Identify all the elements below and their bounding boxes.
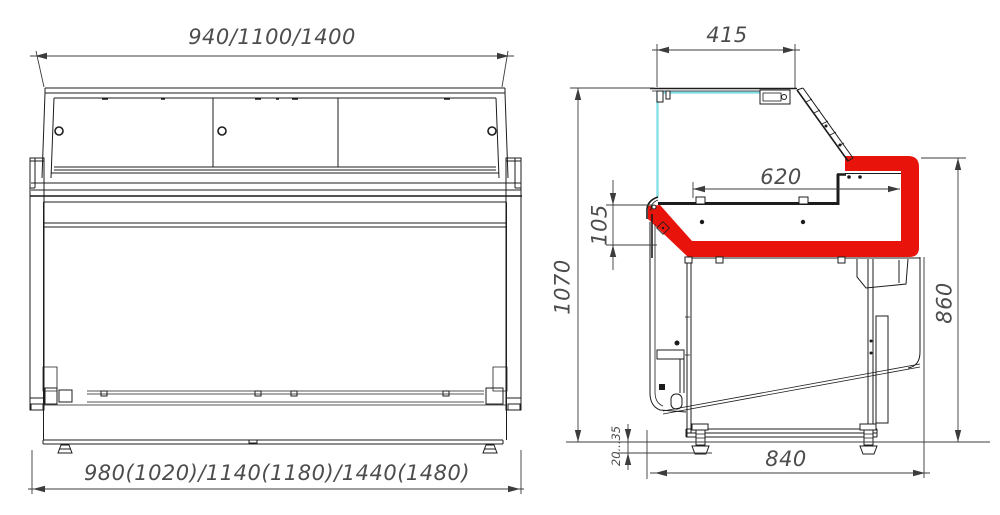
front-bottom-dimension: 980(1020)/1140(1180)/1440(1480): [28, 450, 524, 494]
kick-rail-end-block-left: [45, 388, 57, 404]
cabinet-front-inner: [655, 224, 663, 406]
dim-label-worktop-height: 860: [932, 282, 956, 324]
lower-cabinet: [650, 222, 924, 478]
compressor-housing: [857, 259, 908, 288]
dim-front-height: 105: [587, 180, 657, 270]
cabinet-inner-left: [687, 258, 691, 437]
side-foot-rear: [860, 424, 877, 454]
end-panel-brackets: [43, 367, 507, 391]
dim-label-front-top-width: 940/1100/1400: [188, 25, 356, 49]
kick-rail-lines: [44, 391, 506, 405]
door-handle-middle: [218, 127, 226, 135]
front-bracket: [657, 350, 684, 359]
cabinet-back-edge: [908, 257, 920, 368]
dimension-lines: [30, 51, 514, 87]
counter-edge-lines: [31, 183, 521, 190]
lamp-housing: [760, 90, 790, 104]
dim-label-top-depth: 415: [706, 23, 748, 47]
foot-right: [483, 445, 497, 453]
kick-rail-block: [59, 390, 72, 402]
technical-drawing-page: 940/1100/1400: [0, 0, 1000, 515]
door-dividers: [213, 98, 338, 167]
side-view: 415 620 105 1070 860: [550, 23, 990, 479]
upper-panel-lines: [44, 202, 506, 227]
door-bottom-track: [51, 167, 499, 173]
glass-clip: [657, 91, 670, 102]
glass-pane-line: [658, 92, 763, 197]
dim-top-depth: 415: [652, 23, 800, 88]
dim-label-total-height: 1070: [550, 259, 574, 314]
front-top-dimension: 940/1100/1400: [30, 25, 514, 87]
front-view: 940/1100/1400: [28, 25, 524, 494]
kick-rail-tabs: [101, 391, 449, 396]
base-lines: [43, 440, 503, 444]
top-canopy: [45, 88, 505, 98]
foot-left: [58, 445, 72, 453]
service-panel: [876, 316, 888, 423]
front-feet: [58, 445, 497, 453]
cabinet-inner-right: [868, 259, 873, 437]
door-handle-left: [55, 127, 63, 135]
side-foot-front: [692, 424, 709, 454]
dim-label-counter-depth: 620: [760, 165, 802, 189]
superstructure-posts: [42, 93, 508, 178]
drain-cap: [671, 394, 682, 409]
dim-label-foot-adjust: 20...35: [609, 426, 623, 466]
dim-label-front-bottom-width: 980(1020)/1140(1180)/1440(1480): [84, 461, 470, 485]
front-panel-sides: [44, 202, 507, 440]
deck-clip: [799, 197, 808, 204]
cabinet-base: [686, 429, 877, 437]
dim-label-front-height: 105: [587, 204, 611, 246]
dim-label-base-depth: 840: [765, 447, 807, 471]
kick-rail-end-block-right: [486, 388, 503, 404]
dim-worktop-height: 860: [921, 158, 966, 442]
door-handle-right: [488, 127, 496, 135]
deck-clip: [696, 197, 705, 204]
rear-slanted-panel: [797, 88, 853, 161]
divider-diagonal: [663, 364, 920, 414]
display-case-drawing: 940/1100/1400: [0, 0, 1000, 515]
kick-rail: [44, 388, 506, 405]
sliding-doors: [51, 98, 499, 173]
